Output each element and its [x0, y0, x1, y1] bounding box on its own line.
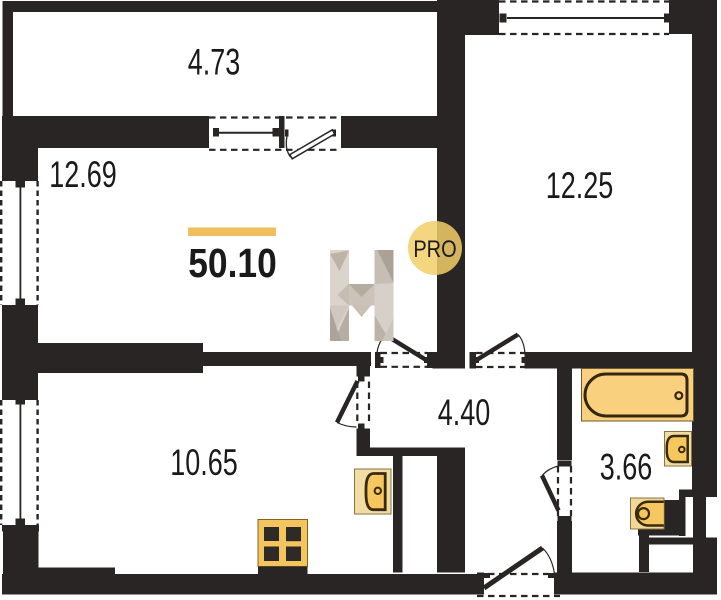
- svg-text:10.65: 10.65: [170, 442, 238, 483]
- svg-text:12.69: 12.69: [49, 154, 117, 195]
- svg-text:50.10: 50.10: [188, 242, 277, 287]
- svg-text:4.73: 4.73: [188, 41, 241, 82]
- svg-text:4.40: 4.40: [438, 392, 491, 433]
- svg-text:12.25: 12.25: [546, 165, 614, 206]
- svg-text:PRO: PRO: [413, 235, 456, 262]
- svg-text:3.66: 3.66: [600, 446, 653, 487]
